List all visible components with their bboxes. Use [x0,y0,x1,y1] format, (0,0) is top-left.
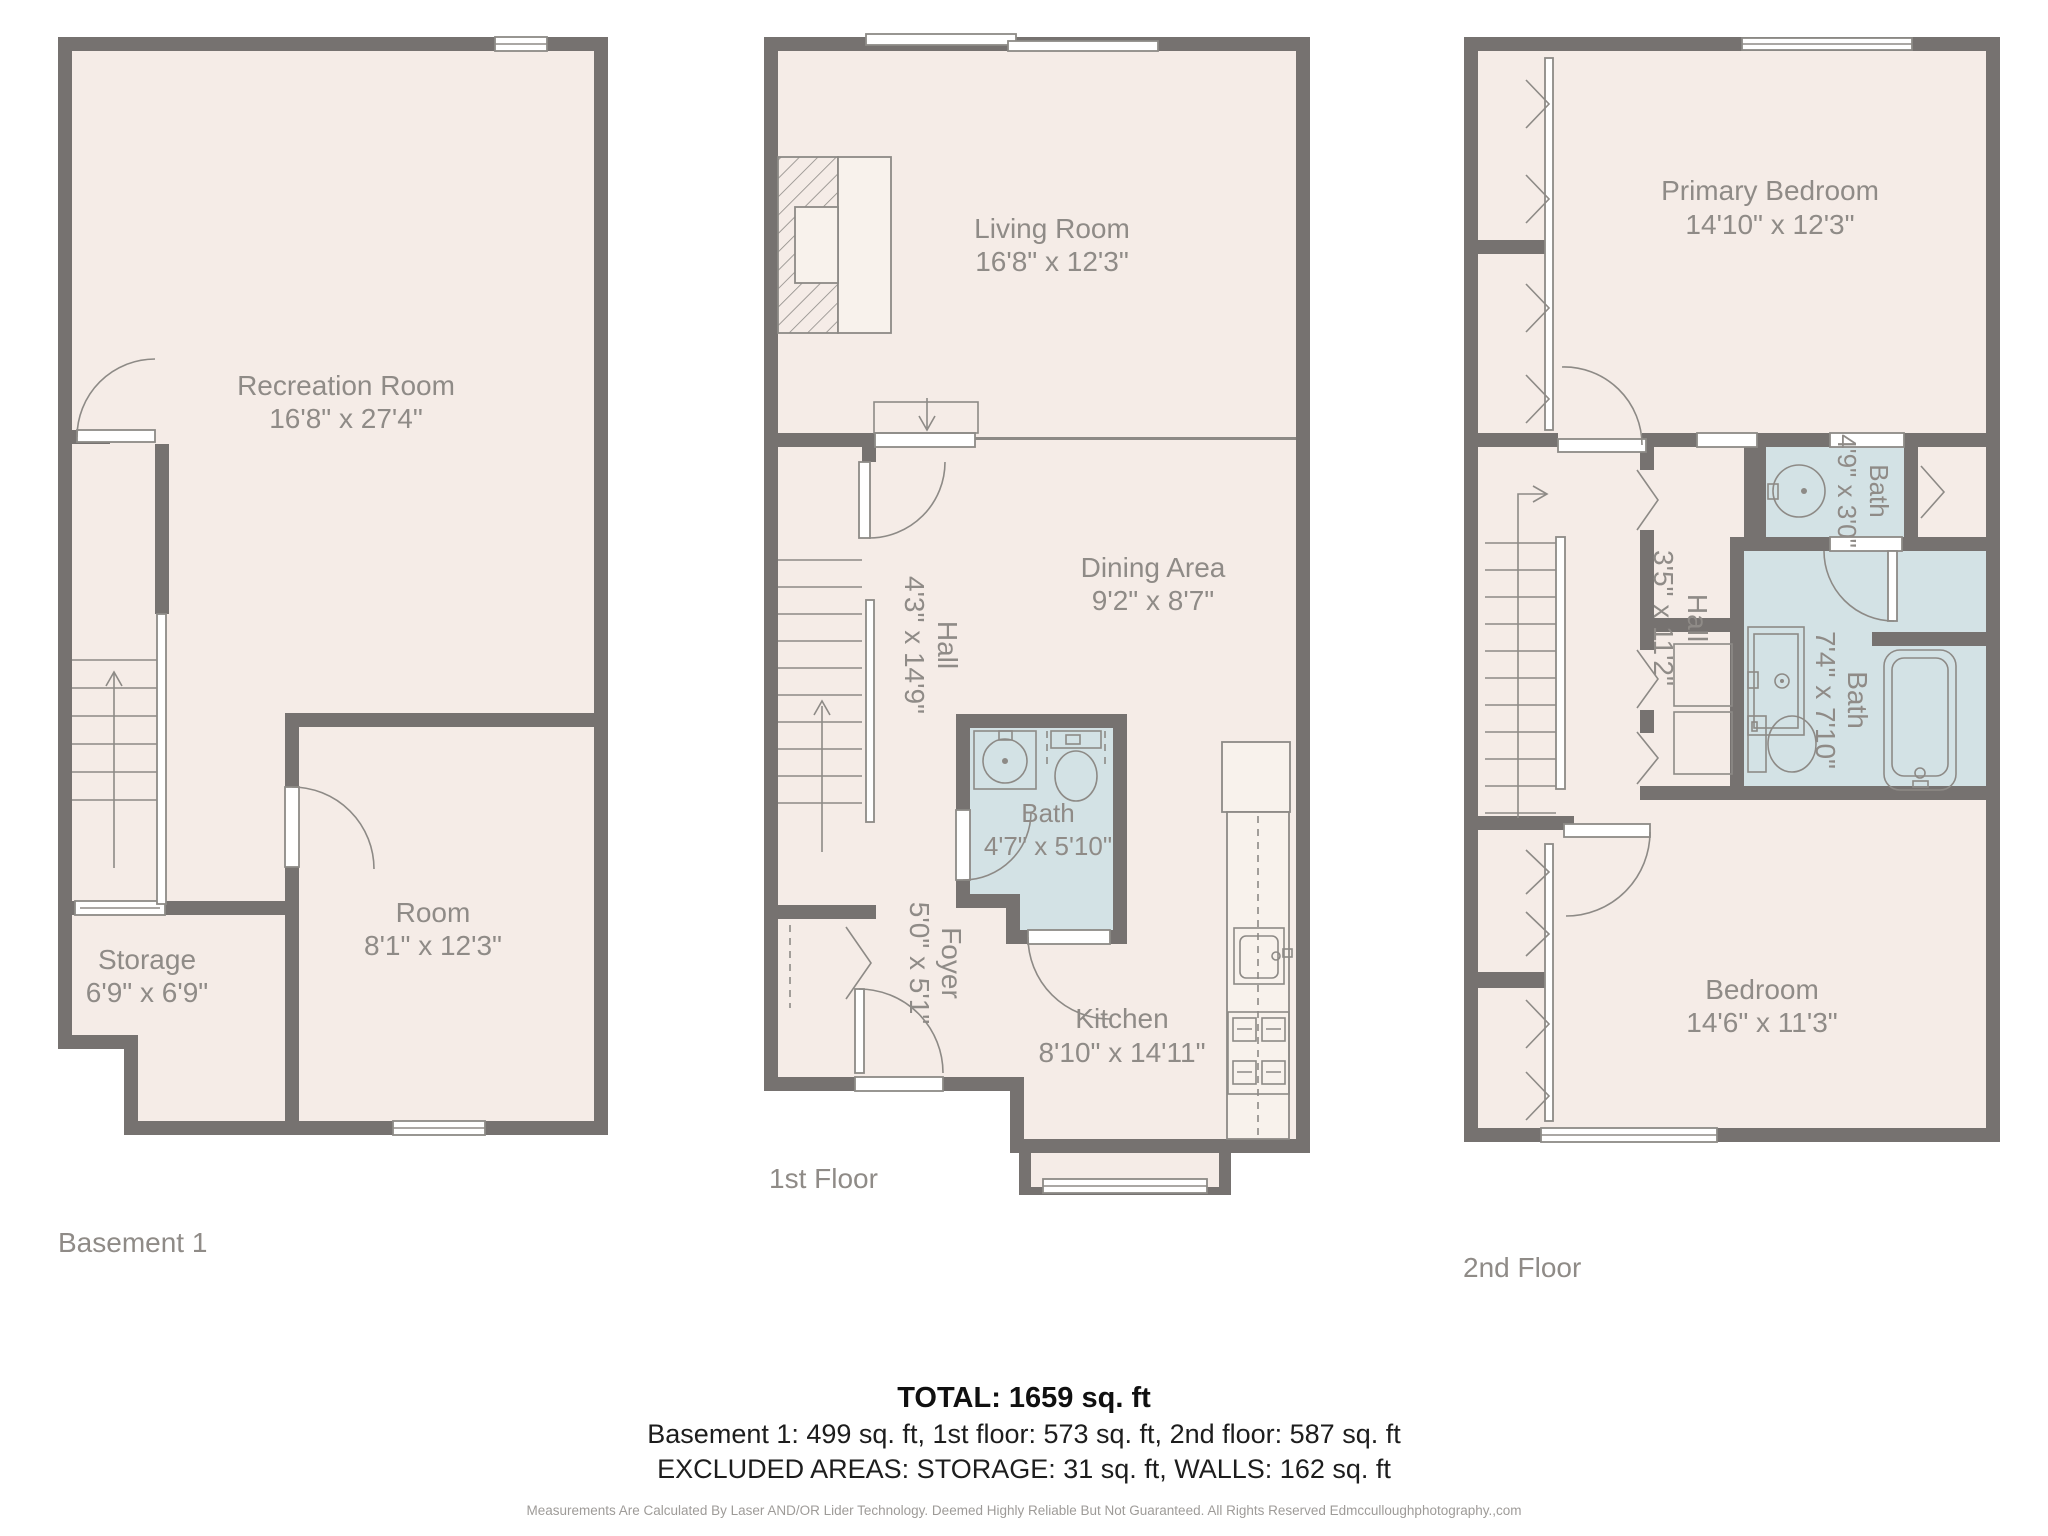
kitchen-dims: 8'10" x 14'11" [1038,1037,1205,1068]
basement-plan: Recreation Room 16'8" x 27'4" Room 8'1" … [40,20,630,1150]
fridge [1222,742,1290,812]
small-bath-dims: 4'9" x 3'0" [1832,434,1862,548]
primary-bedroom-dims: 14'10" x 12'3" [1685,209,1854,240]
bath-label: Bath [1021,798,1075,828]
foyer-dims: 5'0" x 5'1" [904,902,935,1024]
kitchen-fixtures [1222,742,1292,1139]
bath-dims: 4'7" x 5'10" [984,831,1112,861]
floor-areas: Basement 1: 499 sq. ft, 1st floor: 573 s… [0,1419,2048,1450]
living-room-label: Living Room [974,213,1130,244]
recreation-room-label: Recreation Room [237,370,455,401]
railing-line [975,437,1296,440]
foyer-label: Foyer [936,927,967,999]
first-floor-label: 1st Floor [769,1163,878,1195]
bedroom-label: Bedroom [1705,974,1819,1005]
room-label: Room [396,897,471,928]
dining-area-label: Dining Area [1081,552,1226,583]
room-dims: 8'1" x 12'3" [364,930,502,961]
storage-dims: 6'9" x 6'9" [86,977,208,1008]
first-floor-plan: Living Room 16'8" x 12'3" Dining Area 9'… [750,20,1330,1220]
total-area: TOTAL: 1659 sq. ft [0,1382,2048,1415]
small-bath-label: Bath [1864,464,1894,518]
bedroom-dims: 14'6" x 11'3" [1686,1007,1837,1038]
recreation-room-dims: 16'8" x 27'4" [269,403,423,434]
floorplan-canvas: Recreation Room 16'8" x 27'4" Room 8'1" … [0,0,2048,1536]
primary-bedroom-label: Primary Bedroom [1661,175,1879,206]
fireplace [778,157,891,333]
hall-dims: 4'3" x 14'9" [899,576,930,714]
living-room-dims: 16'8" x 12'3" [975,246,1129,277]
kitchen-label: Kitchen [1075,1003,1168,1034]
hall-label: Hall [932,621,963,669]
disclaimer-text: Measurements Are Calculated By Laser AND… [0,1503,2048,1518]
dining-area-dims: 9'2" x 8'7" [1092,585,1214,616]
hall2-label: Hall [1682,594,1713,642]
large-bath-label: Bath [1842,671,1873,729]
excluded-areas: EXCLUDED AREAS: STORAGE: 31 sq. ft, WALL… [0,1454,2048,1485]
large-bath-dims: 7'4" x 7'10" [1810,631,1841,769]
basement-floor-label: Basement 1 [58,1227,207,1259]
hall2-dims: 3'5" x 11'2" [1648,550,1679,686]
storage-label: Storage [98,944,196,975]
second-floor-label: 2nd Floor [1463,1252,1581,1284]
summary-block: TOTAL: 1659 sq. ft Basement 1: 499 sq. f… [0,1382,2048,1518]
second-floor-plan: Primary Bedroom 14'10" x 12'3" Hall 3'5"… [1450,20,2020,1180]
